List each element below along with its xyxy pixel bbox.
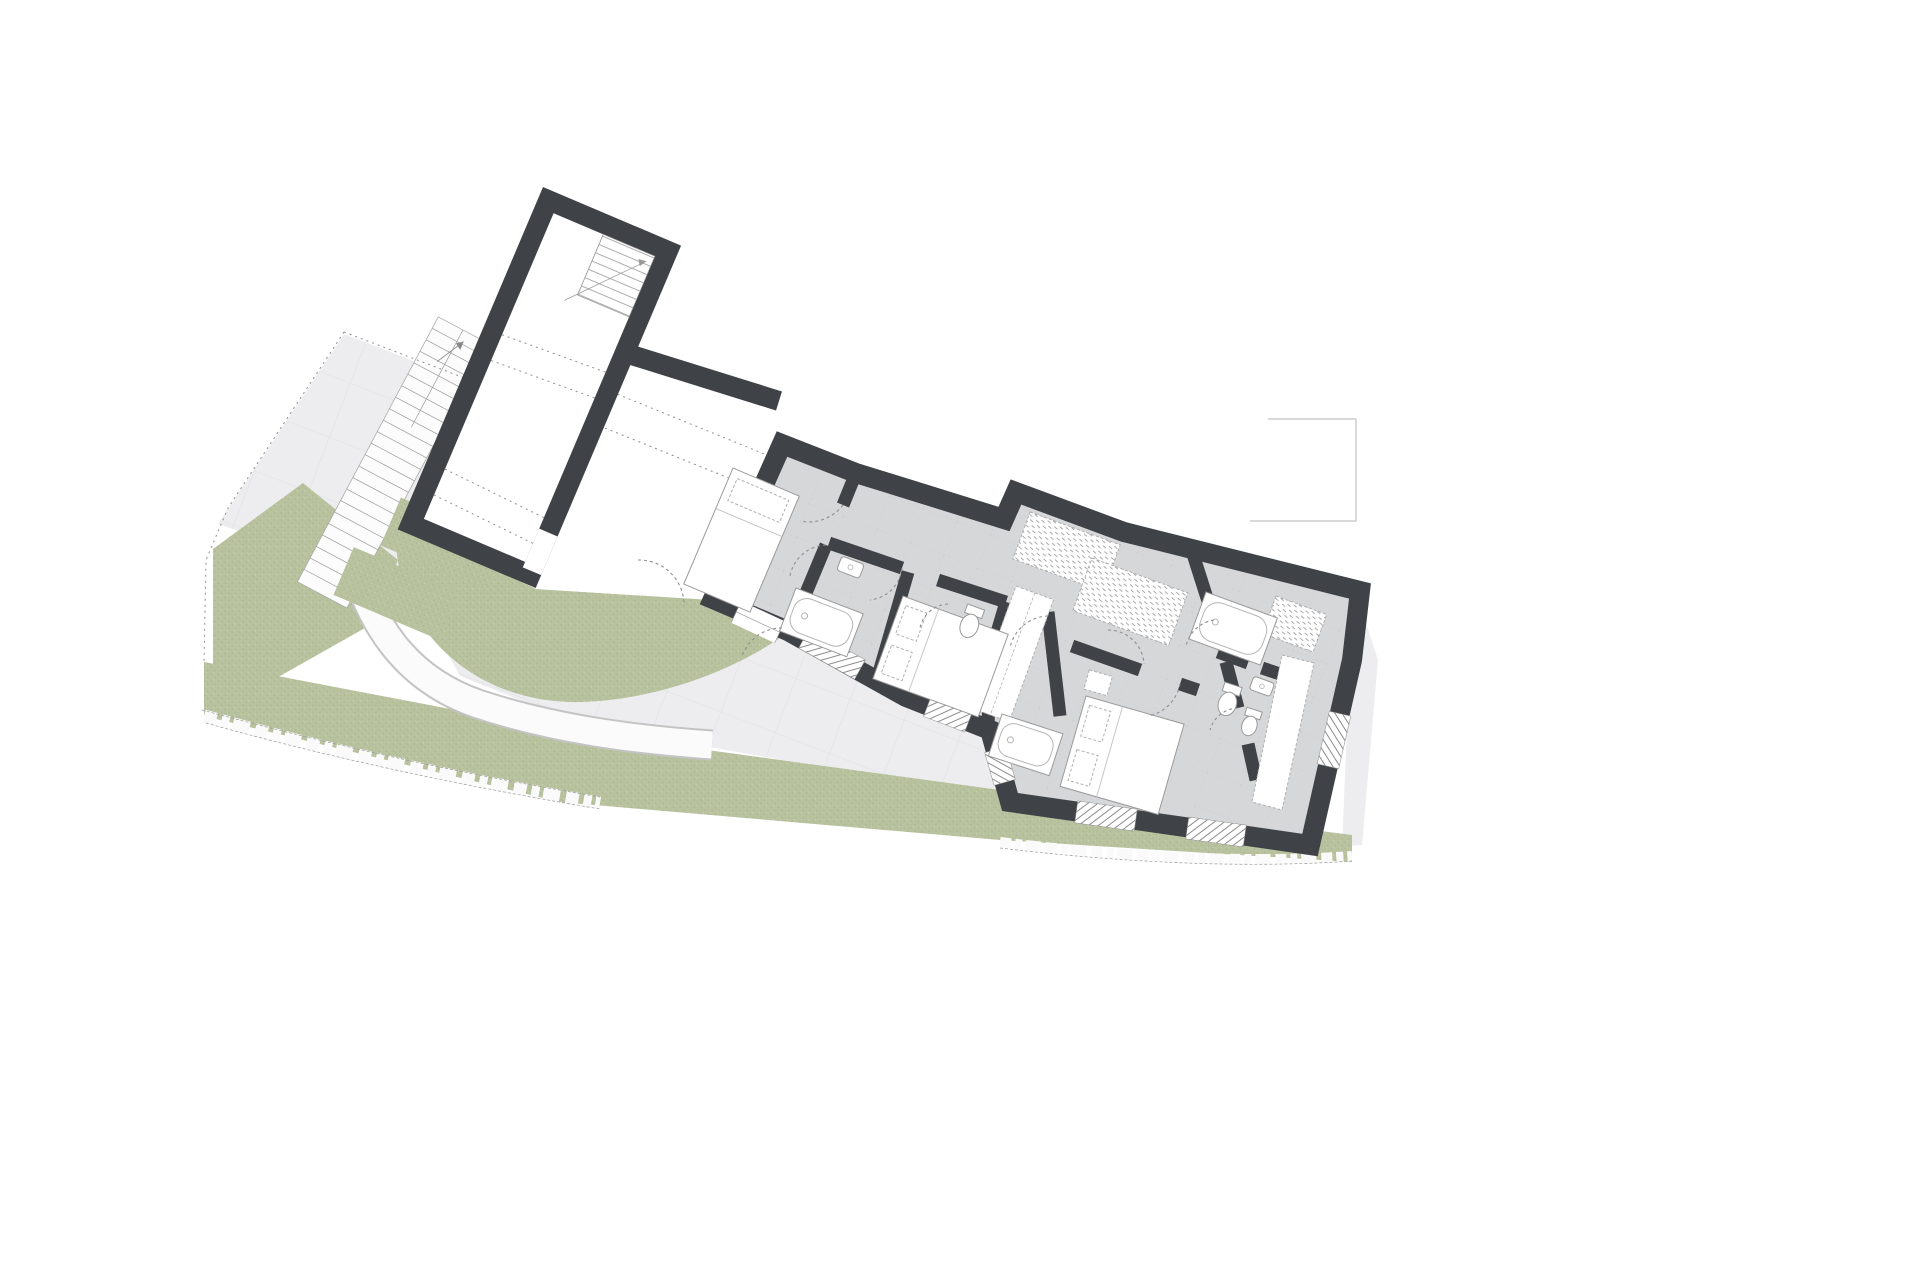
neighbor-lines bbox=[1250, 419, 1356, 521]
floor-plan-drawing bbox=[0, 0, 1920, 1280]
neighbor-outline bbox=[1250, 419, 1356, 521]
floor-plan-sheet bbox=[0, 0, 1920, 1280]
